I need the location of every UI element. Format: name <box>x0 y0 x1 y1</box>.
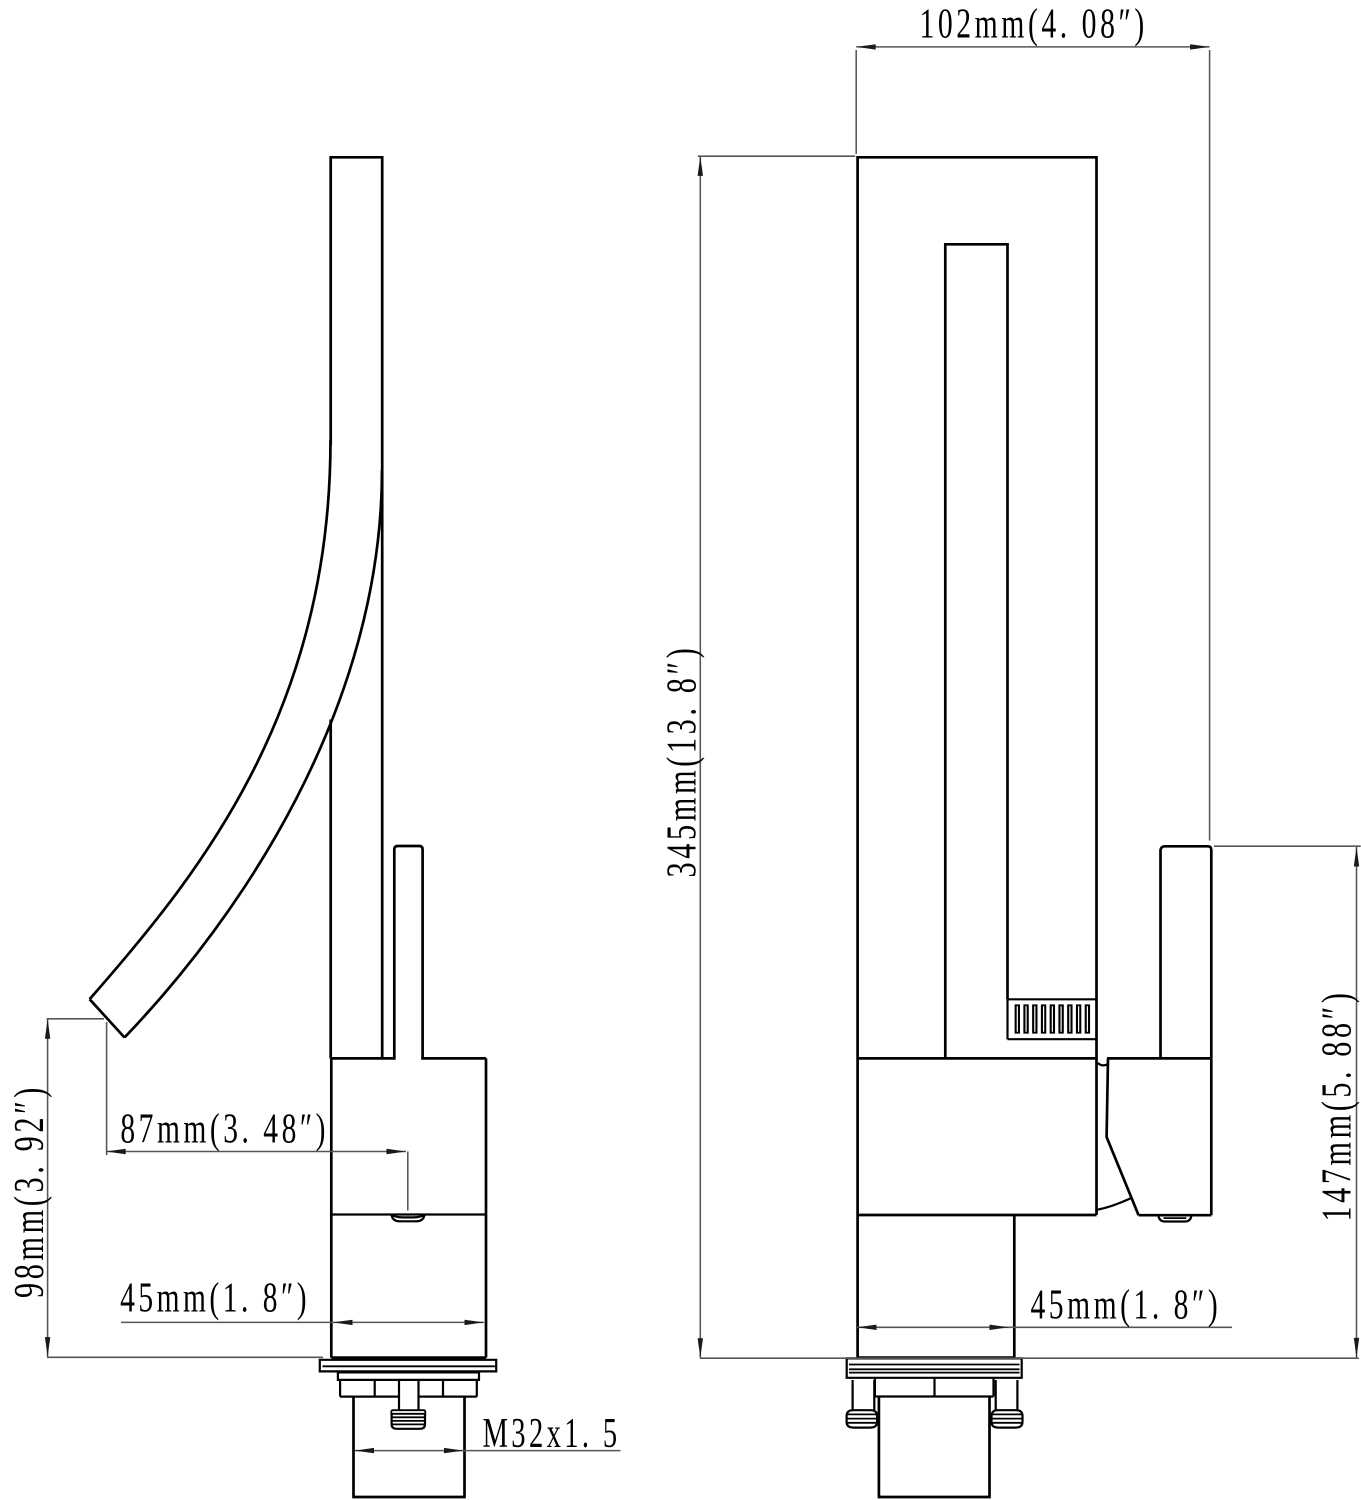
svg-text:345mm(13. 8″): 345mm(13. 8″) <box>660 645 706 878</box>
svg-text:98mm(3. 92″): 98mm(3. 92″) <box>7 1084 53 1298</box>
svg-text:45mm(1. 8″): 45mm(1. 8″) <box>120 1275 310 1321</box>
svg-text:102mm(4. 08″): 102mm(4. 08″) <box>920 1 1148 47</box>
svg-text:87mm(3. 48″): 87mm(3. 48″) <box>120 1107 329 1153</box>
svg-text:M32x1. 5: M32x1. 5 <box>483 1411 621 1457</box>
svg-text:45mm(1. 8″): 45mm(1. 8″) <box>1031 1283 1222 1329</box>
svg-text:147mm(5. 88″): 147mm(5. 88″) <box>1315 990 1361 1222</box>
